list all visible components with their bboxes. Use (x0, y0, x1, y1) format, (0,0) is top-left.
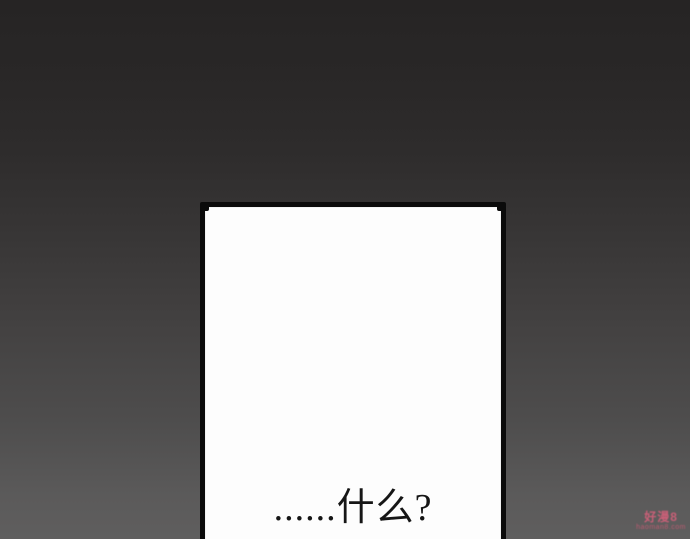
watermark-title: 好漫8 (636, 511, 686, 524)
site-watermark: 好漫8 haoman8.com (636, 511, 686, 532)
watermark-url: haoman8.com (636, 524, 686, 532)
comic-page: ......什么? 好漫8 haoman8.com (0, 0, 690, 539)
dialogue-text: ......什么? (205, 485, 501, 531)
comic-panel: ......什么? (200, 202, 506, 539)
